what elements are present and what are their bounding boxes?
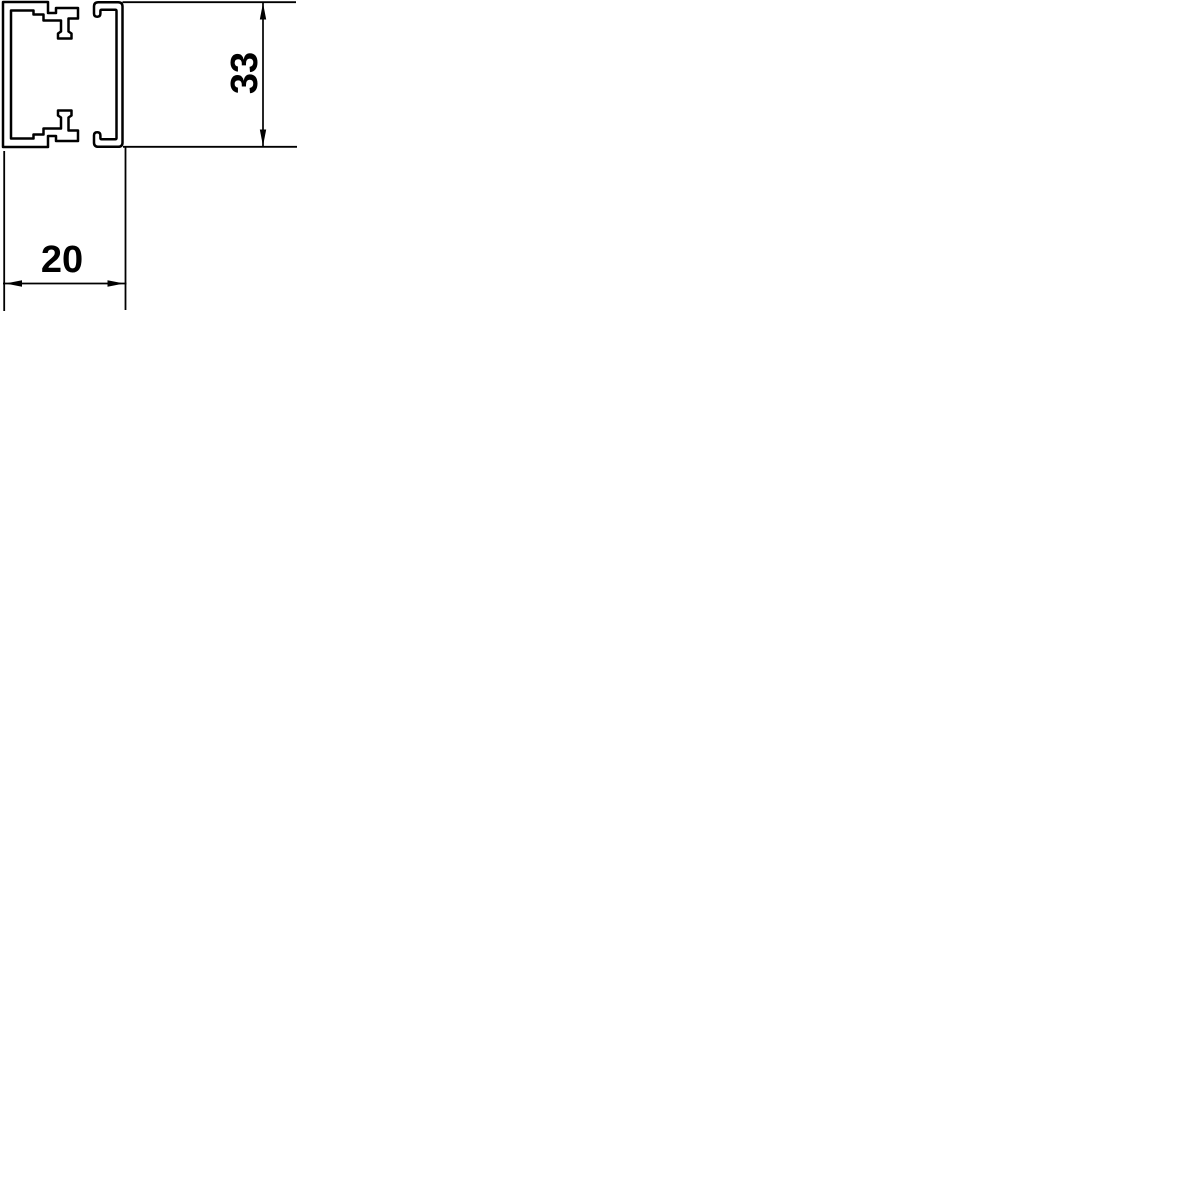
drawing-canvas: 33 20 — [0, 0, 1200, 1200]
height-dimension-label: 33 — [224, 52, 266, 94]
technical-drawing: 33 20 — [0, 0, 1200, 1200]
width-dimension-label: 20 — [41, 239, 83, 281]
drawing-background — [0, 0, 1200, 1200]
